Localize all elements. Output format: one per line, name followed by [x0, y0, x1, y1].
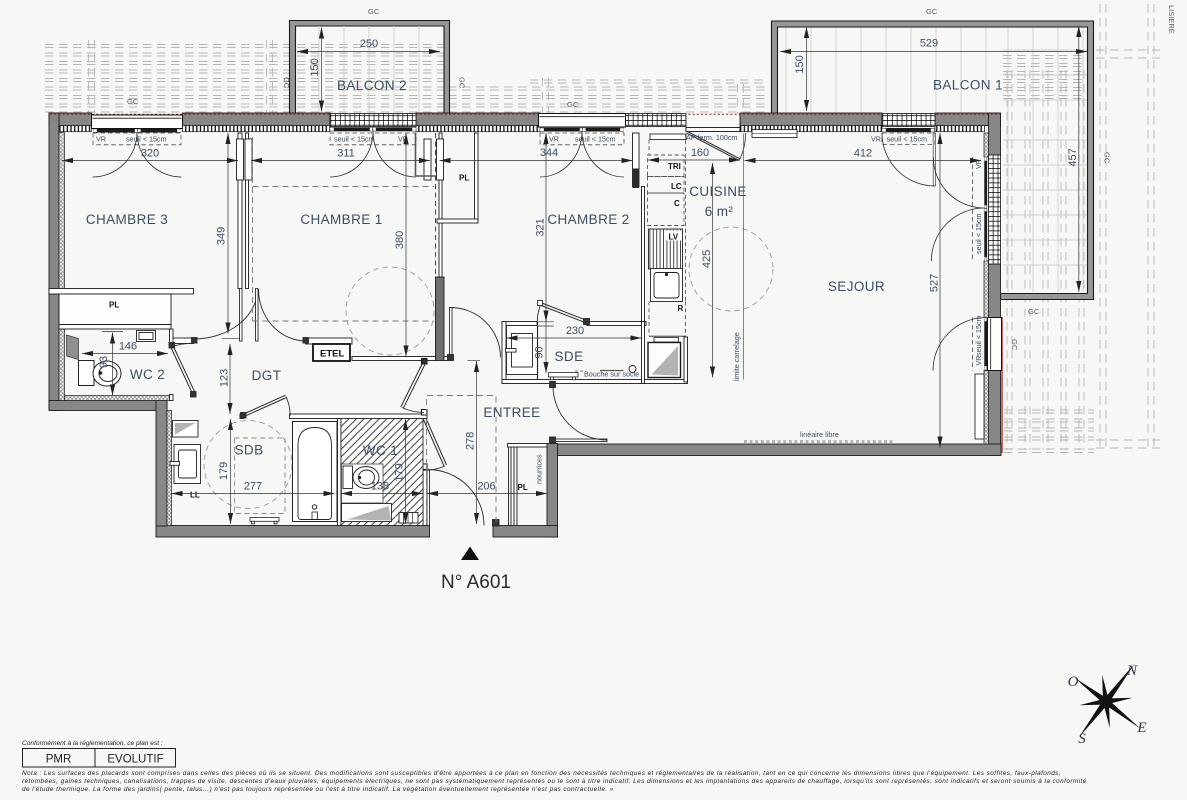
svg-text:GC: GC — [1028, 307, 1040, 316]
svg-text:93: 93 — [98, 356, 110, 368]
svg-text:425: 425 — [701, 250, 713, 268]
svg-text:138: 138 — [371, 481, 389, 493]
svg-text:WC 1: WC 1 — [363, 443, 398, 458]
svg-text:150: 150 — [794, 55, 806, 73]
svg-text:GC: GC — [567, 100, 579, 109]
svg-text:527: 527 — [929, 274, 941, 292]
svg-text:R: R — [678, 304, 684, 313]
svg-text:BALCON 1: BALCON 1 — [933, 78, 1003, 93]
svg-text:VR: VR — [974, 356, 983, 366]
svg-text:146: 146 — [119, 341, 137, 353]
svg-text:N° A601: N° A601 — [441, 572, 511, 593]
svg-text:277: 277 — [244, 481, 262, 493]
svg-text:SEJOUR: SEJOUR — [828, 279, 885, 294]
svg-text:278: 278 — [465, 432, 477, 450]
svg-text:BALCON 2: BALCON 2 — [337, 78, 407, 93]
svg-text:E: E — [1136, 720, 1146, 736]
svg-text:321: 321 — [535, 218, 547, 236]
svg-text:311: 311 — [337, 148, 355, 160]
svg-text:limite carrelage: limite carrelage — [732, 332, 741, 381]
svg-text:seuil < 15cm: seuil < 15cm — [974, 315, 983, 356]
svg-text:WC 2: WC 2 — [130, 367, 165, 382]
svg-text:VR: VR — [96, 135, 106, 144]
svg-text:344: 344 — [540, 147, 558, 159]
svg-text:de l'étude thermique. La forme: de l'étude thermique. La forme des jardi… — [22, 786, 614, 793]
svg-text:CHAMBRE 3: CHAMBRE 3 — [86, 212, 168, 227]
svg-text:linéaire libre: linéaire libre — [800, 430, 839, 439]
svg-text:CUISINE: CUISINE — [689, 184, 747, 199]
svg-text:179: 179 — [394, 463, 406, 481]
svg-text:529: 529 — [920, 38, 938, 50]
svg-text:CHAMBRE 2: CHAMBRE 2 — [547, 212, 629, 227]
svg-text:ENTREE: ENTREE — [483, 405, 540, 420]
svg-text:123: 123 — [219, 369, 231, 387]
svg-text:PL: PL — [459, 174, 469, 183]
svg-text:320: 320 — [141, 148, 159, 160]
svg-text:CHAMBRE 1: CHAMBRE 1 — [300, 212, 382, 227]
svg-text:6 m²: 6 m² — [705, 204, 734, 219]
svg-text:206: 206 — [477, 481, 495, 493]
svg-text:GC: GC — [458, 77, 467, 89]
svg-text:ETEL: ETEL — [320, 349, 344, 360]
svg-text:LISIERE: LISIERE — [1167, 5, 1176, 34]
svg-text:GC: GC — [368, 7, 380, 16]
svg-text:349: 349 — [216, 227, 228, 245]
svg-text:seuil < 15cm: seuil < 15cm — [974, 213, 983, 254]
svg-text:PMR: PMR — [46, 754, 72, 766]
svg-text:nourrices: nourrices — [535, 454, 544, 484]
svg-text:Nota : Les surfaces des placar: Nota : Les surfaces des placards sont co… — [22, 770, 1061, 777]
svg-text:230: 230 — [566, 325, 584, 337]
svg-text:457: 457 — [1067, 148, 1079, 166]
svg-text:160: 160 — [691, 147, 709, 159]
svg-text:LL: LL — [190, 491, 200, 500]
svg-text:N: N — [1126, 663, 1138, 679]
svg-text:C: C — [674, 199, 680, 208]
svg-text:179: 179 — [218, 462, 230, 480]
svg-text:seuil < 15cm: seuil < 15cm — [334, 135, 375, 144]
svg-text:SDE: SDE — [555, 349, 584, 364]
svg-text:GC: GC — [1010, 339, 1019, 351]
svg-text:TRI: TRI — [668, 162, 681, 171]
svg-text:O: O — [1068, 674, 1079, 690]
svg-text:412: 412 — [854, 148, 872, 160]
svg-text:PL: PL — [518, 483, 528, 492]
svg-text:VR: VR — [871, 135, 881, 144]
svg-text:Bouche sur socle: Bouche sur socle — [584, 370, 639, 379]
svg-text:retombées, gaines techniques,: retombées, gaines techniques, canalisati… — [22, 778, 1087, 785]
svg-text:PL: PL — [109, 301, 119, 310]
svg-text:EVOLUTIF: EVOLUTIF — [107, 754, 163, 766]
svg-text:seuil < 15cm: seuil < 15cm — [887, 135, 928, 144]
svg-text:LV: LV — [669, 233, 679, 242]
svg-text:250: 250 — [360, 38, 378, 50]
svg-text:seuil < 15cm: seuil < 15cm — [126, 135, 167, 144]
svg-text:GC: GC — [127, 97, 139, 106]
svg-text:GC: GC — [1103, 152, 1112, 164]
svg-text:150: 150 — [309, 58, 321, 76]
svg-text:DGT: DGT — [252, 368, 282, 383]
svg-text:LC: LC — [671, 182, 682, 191]
svg-text:SDB: SDB — [235, 443, 264, 458]
svg-text:AP ferm. 100cm: AP ferm. 100cm — [686, 133, 737, 142]
svg-text:GC: GC — [926, 7, 938, 16]
svg-text:90: 90 — [534, 346, 546, 358]
svg-text:S: S — [1078, 731, 1086, 747]
svg-text:VR: VR — [549, 135, 559, 144]
svg-text:380: 380 — [394, 231, 406, 249]
svg-text:Conformément à la réglementati: Conformément à la réglementation, ce pla… — [22, 740, 163, 747]
